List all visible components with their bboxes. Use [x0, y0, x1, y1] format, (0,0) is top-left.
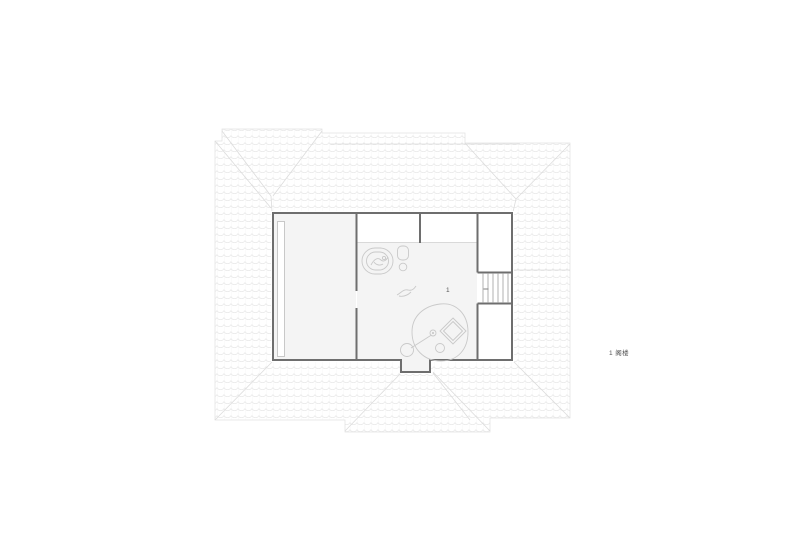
- room-left-fill: [274, 214, 356, 360]
- floor-plan-drawing: 1 1 阁楼: [0, 0, 790, 558]
- window-left: [278, 222, 285, 357]
- legend-label: 1 阁楼: [609, 348, 629, 357]
- attic-floor-plan: 1: [271, 211, 514, 374]
- lamp-pivot-dot: [432, 332, 434, 334]
- room-number-label: 1: [446, 287, 450, 294]
- room-main-fill: [357, 243, 477, 372]
- page: 1 1 阁楼: [0, 0, 790, 558]
